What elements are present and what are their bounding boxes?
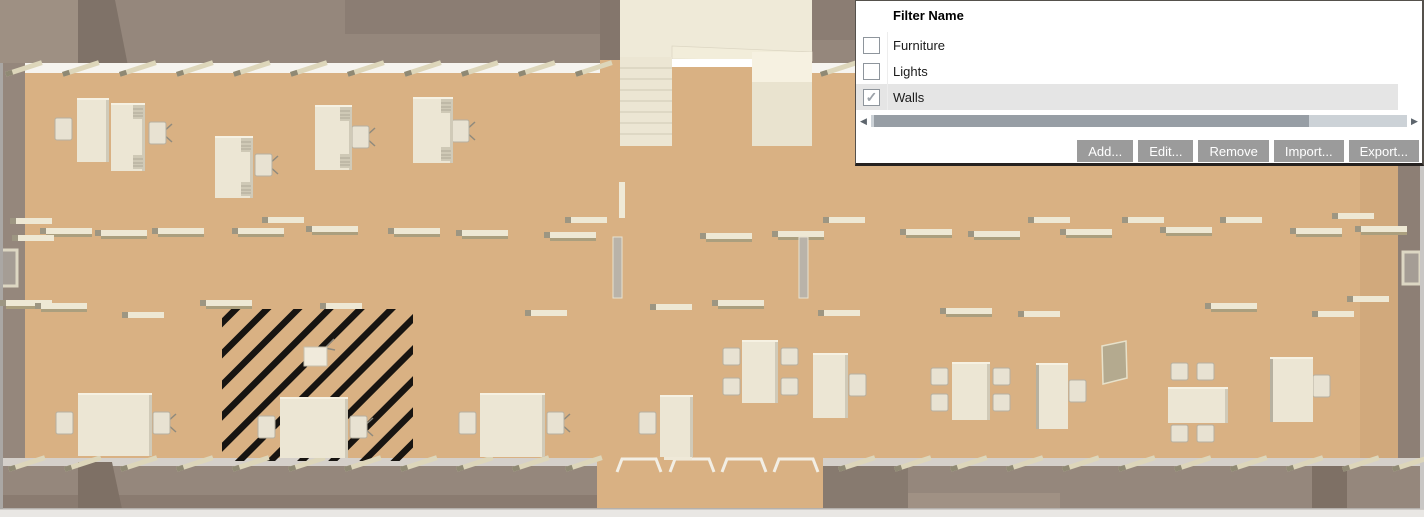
filter-name-label: Furniture xyxy=(893,38,945,53)
ceiling-light[interactable] xyxy=(1312,311,1354,317)
left-edge xyxy=(0,63,3,509)
remove-button[interactable]: Remove xyxy=(1198,140,1268,162)
horizontal-scrollbar[interactable]: ◀ ▶ xyxy=(856,113,1422,129)
ceiling-light[interactable] xyxy=(1028,217,1070,223)
chair[interactable] xyxy=(1197,425,1214,442)
ceiling-light[interactable] xyxy=(200,300,252,309)
ceiling-light[interactable] xyxy=(1060,229,1112,238)
ceiling-light[interactable] xyxy=(152,228,204,237)
ceiling-light[interactable] xyxy=(544,232,596,241)
bottom-edge-line xyxy=(0,508,1424,510)
ceiling-light[interactable] xyxy=(968,231,1020,240)
chair[interactable] xyxy=(1171,425,1188,442)
ceiling-light[interactable] xyxy=(1018,311,1060,317)
chair[interactable] xyxy=(1313,375,1330,397)
desk[interactable] xyxy=(813,353,848,418)
table[interactable] xyxy=(952,362,990,420)
table[interactable] xyxy=(1168,387,1228,423)
chair[interactable] xyxy=(1197,363,1214,380)
ceiling-light[interactable] xyxy=(1355,226,1407,235)
desk[interactable] xyxy=(280,397,348,458)
ceiling-light[interactable] xyxy=(1220,217,1262,223)
desk[interactable] xyxy=(1036,363,1068,429)
desk[interactable] xyxy=(78,393,152,456)
filter-name-label: Walls xyxy=(893,90,924,105)
desk[interactable] xyxy=(111,103,145,171)
filter-checkbox-furniture[interactable] xyxy=(863,37,880,54)
scroll-right-arrow-icon[interactable]: ▶ xyxy=(1409,116,1420,127)
add-button[interactable]: Add... xyxy=(1077,140,1133,162)
whiteboard[interactable] xyxy=(1102,341,1127,384)
app-window: Filter Name FurnitureLights✓Walls ◀ ▶ Ad… xyxy=(0,0,1424,517)
ceiling-light[interactable] xyxy=(772,231,824,240)
ceiling-light[interactable] xyxy=(122,312,164,318)
desk[interactable] xyxy=(315,105,352,170)
ceiling-light[interactable] xyxy=(12,235,54,241)
ceiling-light[interactable] xyxy=(306,226,358,235)
import-button[interactable]: Import... xyxy=(1274,140,1344,162)
ceiling-light[interactable] xyxy=(1160,227,1212,236)
chair[interactable] xyxy=(723,378,740,395)
right-window xyxy=(1403,252,1420,284)
ceiling-light[interactable] xyxy=(456,230,508,239)
chair[interactable] xyxy=(723,348,740,365)
ceiling-light[interactable] xyxy=(818,310,860,316)
ceiling-light[interactable] xyxy=(650,304,692,310)
ceiling-light[interactable] xyxy=(320,303,362,309)
chair[interactable] xyxy=(55,118,72,140)
chair[interactable] xyxy=(56,412,73,434)
desk[interactable] xyxy=(480,393,545,457)
ceiling-light[interactable] xyxy=(823,217,865,223)
chair[interactable] xyxy=(1069,380,1086,402)
chair[interactable] xyxy=(781,348,798,365)
filter-row-furniture[interactable]: Furniture xyxy=(856,32,1422,58)
dialog-title: Filter Name xyxy=(856,1,1422,32)
ceiling-light[interactable] xyxy=(565,217,607,223)
chair[interactable] xyxy=(993,394,1010,411)
desk[interactable] xyxy=(660,395,693,457)
filter-row-lights[interactable]: Lights xyxy=(856,58,1422,84)
ceiling-light[interactable] xyxy=(700,233,752,242)
chair[interactable] xyxy=(639,412,656,434)
filter-list: FurnitureLights✓Walls xyxy=(856,32,1422,110)
ceiling-light[interactable] xyxy=(388,228,440,237)
ceiling-light[interactable] xyxy=(712,300,764,309)
scrollbar-track[interactable] xyxy=(871,115,1407,127)
bottom-edge xyxy=(0,509,1424,517)
filter-checkbox-walls[interactable]: ✓ xyxy=(863,89,880,106)
chair[interactable] xyxy=(993,368,1010,385)
ceiling-light[interactable] xyxy=(1332,213,1374,219)
chair[interactable] xyxy=(781,378,798,395)
desk[interactable] xyxy=(215,136,253,198)
chair[interactable] xyxy=(931,394,948,411)
chair[interactable] xyxy=(459,412,476,434)
ceiling-light[interactable] xyxy=(1290,228,1342,237)
scrollbar-thumb[interactable] xyxy=(874,115,1309,127)
ceiling-light[interactable] xyxy=(95,230,147,239)
ceiling-light[interactable] xyxy=(525,310,567,316)
scroll-left-arrow-icon[interactable]: ◀ xyxy=(858,116,869,127)
chair[interactable] xyxy=(258,416,275,438)
ceiling-light[interactable] xyxy=(940,308,992,317)
ceiling-light[interactable] xyxy=(1122,217,1164,223)
ceiling-light[interactable] xyxy=(1347,296,1389,302)
staircase[interactable] xyxy=(600,0,812,146)
chair[interactable] xyxy=(931,368,948,385)
export-button[interactable]: Export... xyxy=(1349,140,1419,162)
ceiling-light[interactable] xyxy=(232,228,284,237)
edit-button[interactable]: Edit... xyxy=(1138,140,1193,162)
filter-checkbox-lights[interactable] xyxy=(863,63,880,80)
filter-row-walls[interactable]: ✓Walls xyxy=(856,84,1398,110)
table[interactable] xyxy=(742,340,778,403)
ceiling-light[interactable] xyxy=(1205,303,1257,312)
chair[interactable] xyxy=(849,374,866,396)
ceiling-light[interactable] xyxy=(10,218,52,224)
chair[interactable] xyxy=(1171,363,1188,380)
ceiling-light[interactable] xyxy=(900,229,952,238)
desk[interactable] xyxy=(77,98,109,162)
ceiling-light[interactable] xyxy=(262,217,304,223)
desk[interactable] xyxy=(413,97,453,163)
ceiling-light[interactable] xyxy=(35,303,87,312)
desk[interactable] xyxy=(1270,357,1313,422)
filters-dialog: Filter Name FurnitureLights✓Walls ◀ ▶ Ad… xyxy=(855,0,1424,166)
dialog-buttons: Add...Edit...RemoveImport...Export... xyxy=(1077,140,1419,162)
filter-name-label: Lights xyxy=(893,64,928,79)
